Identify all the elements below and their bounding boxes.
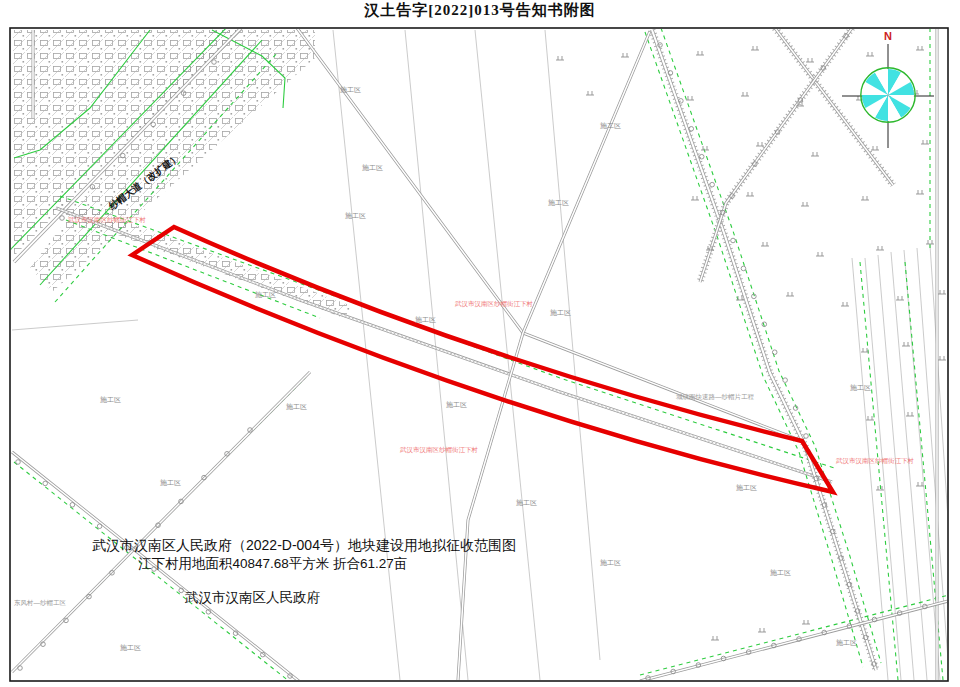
tree-symbol: [783, 378, 788, 383]
construction-zone-label: 施工区: [120, 644, 141, 651]
vegetation-line: [60, 196, 834, 468]
grass-symbol: [586, 91, 594, 95]
grass-symbol: [806, 58, 814, 62]
road-line: [458, 31, 650, 680]
tree-symbol: [741, 266, 746, 271]
tree-symbol: [18, 666, 23, 671]
tree-symbol: [97, 524, 102, 529]
grass-symbol: [906, 412, 914, 416]
tree-symbol: [60, 216, 65, 221]
notice-line-3: 武汉市汉南区人民政府: [184, 590, 321, 605]
grass-symbol: [802, 620, 810, 624]
tree-symbol: [16, 460, 21, 465]
grass-symbol: [861, 196, 869, 200]
tree-symbol: [689, 126, 694, 131]
road-core: [700, 28, 852, 282]
embankment-ticks: [700, 28, 852, 282]
road-core: [458, 31, 650, 680]
field-line: [878, 255, 914, 680]
tree-symbol: [699, 154, 704, 159]
road-line: [700, 28, 852, 282]
construction-zone-label: 施工区: [340, 86, 361, 93]
grass-symbol: [621, 53, 629, 57]
construction-zone-label: 施工区: [600, 122, 621, 129]
construction-zone-label: 施工区: [550, 309, 571, 316]
grass-symbol: [746, 192, 754, 196]
grass-symbol: [896, 296, 904, 300]
page-title: 汉土告字[2022]013号告知书附图: [0, 1, 960, 20]
grass-symbol: [916, 190, 924, 194]
grass-symbol: [761, 242, 769, 246]
construction-zone-label: 施工区: [836, 639, 857, 646]
grass-symbol: [696, 51, 704, 55]
tree-symbol: [731, 238, 736, 243]
grass-symbol: [876, 246, 884, 250]
grass-symbol: [758, 628, 766, 632]
grass-symbol: [902, 342, 910, 346]
notice-line-2: 江下村用地面积40847.68平方米 折合61.27亩: [138, 556, 407, 571]
construction-zone-label: 施工区: [850, 384, 871, 391]
village-name-label: 武汉市汉南区纱帽街江下村: [67, 216, 146, 224]
grass-symbol: [866, 52, 874, 56]
grass-symbol: [741, 92, 749, 96]
tree-symbol: [804, 434, 809, 439]
village-name-label: 武汉市汉南区纱帽街江下村: [835, 457, 914, 465]
grass-symbol: [701, 146, 709, 150]
road-core: [12, 372, 310, 672]
vegetation-line: [640, 594, 953, 675]
grass-symbol: [756, 142, 764, 146]
grass-symbol: [921, 140, 929, 144]
construction-zone-label: 施工区: [362, 164, 383, 171]
grass-symbol: [691, 196, 699, 200]
grass-symbol: [751, 46, 759, 50]
grass-symbol: [938, 290, 946, 294]
construction-zone-label: 施工区: [415, 316, 436, 323]
grass-symbol: [711, 636, 719, 640]
construction-zone-label: 施工区: [736, 484, 757, 491]
construction-zone-label: 施工区: [100, 396, 121, 403]
grass-symbol: [686, 96, 694, 100]
tree-symbol: [679, 99, 684, 104]
grass-symbol: [811, 152, 819, 156]
construction-zone-label: 施工区: [160, 479, 181, 486]
field-line: [12, 320, 138, 330]
construction-zone-label: 施工区: [548, 199, 569, 206]
map-annotation-label: 东风村—纱帽工区: [14, 599, 67, 607]
map-canvas: 施工区施工区施工区施工区施工区施工区施工区施工区施工区施工区施工区施工区施工区施…: [0, 0, 960, 687]
construction-zone-label: 施工区: [516, 499, 537, 506]
urban-area: [50, 196, 352, 318]
village-name-label: 武汉市汉南区纱帽街江下村: [454, 300, 533, 308]
grass-symbol: [816, 252, 824, 256]
grass-symbol: [556, 56, 564, 60]
grass-symbol: [916, 482, 924, 486]
grass-symbol: [916, 46, 924, 50]
construction-zone-label: 施工区: [600, 559, 621, 566]
field-line: [917, 248, 948, 660]
grass-symbol: [841, 302, 849, 306]
construction-zone-label: 施工区: [446, 401, 467, 408]
grass-symbol: [786, 292, 794, 296]
tree-symbol: [43, 481, 48, 486]
tree-symbol: [710, 182, 715, 187]
north-label: N: [884, 30, 892, 42]
construction-zone-label: 施工区: [345, 212, 366, 219]
grass-symbol: [866, 416, 874, 420]
vegetation-line: [860, 262, 898, 680]
field-line: [333, 30, 400, 680]
construction-zone-label: 施工区: [286, 403, 307, 410]
construction-zone-label: 施工区: [255, 291, 276, 298]
compass-rose: N: [842, 30, 934, 148]
road-core: [640, 599, 956, 681]
map-annotation-label: 城镇圈快速路—纱帽片工程: [676, 393, 755, 401]
notice-line-1: 武汉市汉南区人民政府（2022-D-004号）地块建设用地拟征收范围图: [92, 537, 516, 553]
tree-symbol: [772, 350, 777, 355]
map-layers: 施工区施工区施工区施工区施工区施工区施工区施工区施工区施工区施工区施工区施工区施…: [8, 22, 956, 686]
grass-symbol: [871, 146, 879, 150]
grass-symbol: [926, 240, 934, 244]
tree-symbol: [70, 503, 75, 508]
grass-symbol: [801, 202, 809, 206]
vegetation-line: [14, 462, 295, 686]
village-name-label: 武汉市汉南区纱帽街江下村: [399, 446, 478, 454]
construction-zone-label: 施工区: [770, 569, 791, 576]
grass-symbol: [938, 356, 946, 360]
vegetation-line: [645, 32, 863, 667]
